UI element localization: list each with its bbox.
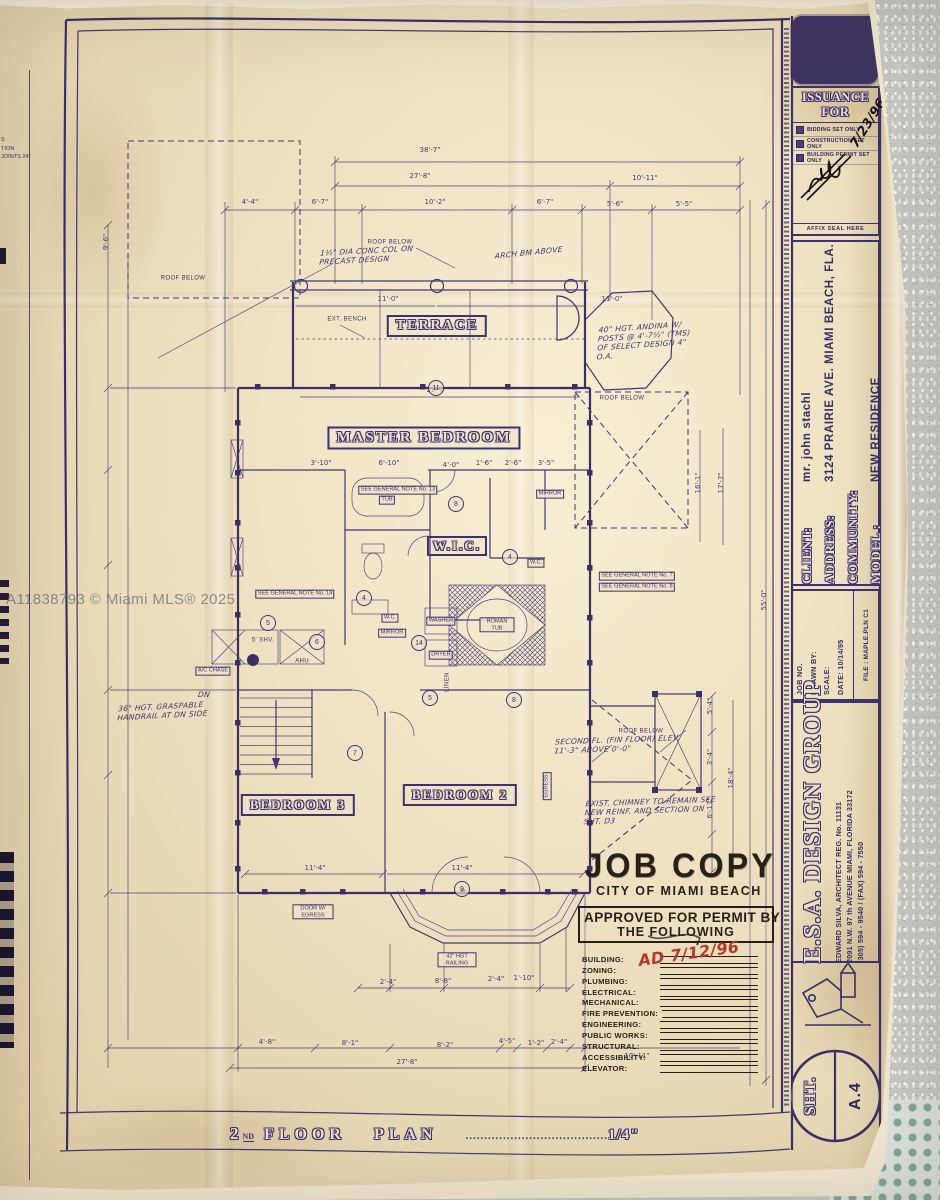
cut-off-text-line: JOINTS 24" xyxy=(1,153,31,162)
firm-phone: (305) 594 - 9540 / (FAX) 594 - 7550 xyxy=(855,701,866,963)
permit-department-list: BUILDING:ZONING:PLUMBING:ELECTRICAL:MECH… xyxy=(582,953,758,1073)
design-firm-block: E.S.A. DESIGN GROUP EDWARD SILVA, ARCHIT… xyxy=(791,701,880,963)
title-word-plan: PLAN xyxy=(374,1126,438,1144)
client-row-label: CLIENT: xyxy=(799,482,815,584)
client-row-value: mr. john stachl xyxy=(801,392,813,482)
department-row: STRUCTURAL: xyxy=(582,1040,758,1051)
client-row: CLIENT:mr. john stachl xyxy=(795,242,818,588)
dimension-label: 4'-8" xyxy=(259,1038,276,1046)
firm-address: 2091 N.W. 97 th AVENUE MIAMI, FLORIDA 33… xyxy=(844,701,855,963)
sheet-title-band: 2 ND FLOOR PLAN ........................… xyxy=(230,1124,710,1144)
department-row: ENGINEERING: xyxy=(582,1018,758,1029)
department-label: MECHANICAL: xyxy=(582,998,656,1007)
dimension-label: 1'-6" xyxy=(476,459,493,467)
dimension-label: 8'-8" xyxy=(435,977,452,985)
client-row: ADDRESS:3124 PRAIRIE AVE. MIAMI BEACH, F… xyxy=(818,242,841,588)
adjacent-sheet-fragment xyxy=(0,248,6,264)
approval-signature xyxy=(793,146,878,204)
dimension-label: 5'-6" xyxy=(607,200,624,208)
signature-line xyxy=(660,978,758,986)
dimension-label: 8'-2" xyxy=(437,1041,454,1049)
firm-logo xyxy=(791,963,880,1041)
department-row: PUBLIC WORKS: xyxy=(582,1029,758,1040)
department-label: PLUMBING: xyxy=(582,977,656,986)
file-cell: FILE : MAPLE.PLN C1 xyxy=(853,591,879,699)
title-ordinal: ND xyxy=(243,1132,255,1142)
micro-disclaimer-text-column xyxy=(784,28,789,1106)
firm-name: E.S.A. DESIGN GROUP xyxy=(793,701,833,963)
adjacent-sheet-border xyxy=(29,70,30,1180)
dimension-label: 8'-1" xyxy=(342,1039,359,1047)
title-number: 2 xyxy=(230,1124,241,1144)
dimension-label: 4'-4" xyxy=(242,198,259,206)
dimension-label: 11'-0" xyxy=(377,295,398,303)
dimension-label: 2'-4" xyxy=(380,978,397,986)
dimension-label: 5'-5" xyxy=(676,200,693,208)
dimension-label: 3'-4" xyxy=(706,749,714,766)
client-row: MODEL :NEW RESIDENCE xyxy=(864,242,887,588)
dimension-label: 4'-5" xyxy=(499,1037,516,1045)
dimension-label: 11'-4" xyxy=(451,864,472,872)
cut-off-note-text: STIONJOINTS 24" xyxy=(1,136,31,162)
affix-seal-here: AFFIX SEAL HERE xyxy=(793,223,878,234)
checkbox-icon xyxy=(796,126,804,134)
department-label: ELECTRICAL: xyxy=(582,988,656,997)
client-row-label: MODEL : xyxy=(868,482,884,584)
dimension-label: 27'-8" xyxy=(396,1058,417,1066)
file-name: FILE : MAPLE.PLN C1 xyxy=(854,591,879,699)
dimension-label: 6'-11" xyxy=(706,797,714,818)
dimension-label: 16'-1" xyxy=(694,472,702,493)
department-row: ACCESSIBILITY: xyxy=(582,1051,758,1062)
approved-for-permit-box: APPROVED FOR PERMIT BY THE FOLLOWING xyxy=(578,906,774,943)
title-scale: 1/4" xyxy=(608,1127,640,1144)
signature-line xyxy=(660,967,758,975)
dimension-label: 9'-6" xyxy=(102,234,110,251)
department-row: ELECTRICAL: xyxy=(582,986,758,997)
dimension-label: 10'-11" xyxy=(632,174,657,182)
department-row: PLUMBING: xyxy=(582,975,758,986)
dimension-label: 3'-5" xyxy=(538,459,555,467)
dimension-label: 1'-2" xyxy=(528,1039,545,1047)
signature-line xyxy=(660,1043,758,1051)
signature-line xyxy=(660,989,758,997)
dimension-label: 22'-0" xyxy=(426,386,447,394)
signature-line xyxy=(660,1021,758,1029)
sheet-label: SHT. xyxy=(802,1077,820,1116)
department-row: MECHANICAL: xyxy=(582,997,758,1008)
dimension-label: 17'-7" xyxy=(717,472,725,493)
department-label: FIRE PREVENTION: xyxy=(582,1009,658,1018)
dimension-label: 6'-10" xyxy=(378,459,399,467)
dimension-label: 2'-4" xyxy=(551,1038,568,1046)
signature-line xyxy=(660,1054,758,1062)
dimension-label: 6'-7" xyxy=(312,198,329,206)
dimension-label: 11'-4" xyxy=(304,864,325,872)
client-row-label: COMMUNITY: xyxy=(845,482,861,584)
title-word-floor: FLOOR xyxy=(264,1126,346,1144)
issuance-for-block: ISSUANCE FOR BIDDING SET ONLYCONSTRUCTIO… xyxy=(791,86,880,236)
signature-line xyxy=(660,1032,758,1040)
department-label: STRUCTURAL: xyxy=(582,1042,656,1051)
cut-off-text-line: S xyxy=(1,136,31,145)
pencil-logo-icon xyxy=(791,963,880,1041)
blueprint-sheet: 38'-7"27'-8"10'-11"4'-4"6'-7"10'-2"6'-7"… xyxy=(0,0,940,1200)
ink-blob xyxy=(792,16,878,84)
dimension-label: 4'-0" xyxy=(443,461,460,469)
client-row-value: NEW RESIDENCE xyxy=(870,377,882,482)
walls xyxy=(128,141,702,943)
dimension-label: 2'-6" xyxy=(505,459,522,467)
dimension-label: 27'-8" xyxy=(409,172,430,180)
job-copy-text: JOB COPY xyxy=(584,846,776,886)
dimension-label: 6'-7" xyxy=(537,198,554,206)
firm-architect: EDWARD SILVA, ARCHITECT REG. No. 11131 xyxy=(833,701,844,963)
department-label: ELEVATOR: xyxy=(582,1064,656,1073)
job-info-line: DATE: 10/14/95 xyxy=(834,587,848,695)
department-label: ACCESSIBILITY: xyxy=(582,1053,656,1062)
signature-line xyxy=(660,1065,758,1073)
job-copy-stamp: JOB COPY CITY OF MIAMI BEACH xyxy=(588,848,772,898)
dimension-label: 5'-4" xyxy=(706,698,714,715)
client-row-value: 3124 PRAIRIE AVE. MIAMI BEACH, FLA. xyxy=(824,244,836,482)
dimension-label: 2'-4" xyxy=(488,975,505,983)
approved-line-1: APPROVED FOR PERMIT BY xyxy=(584,910,768,925)
client-row: COMMUNITY: xyxy=(841,242,864,588)
client-rows: CLIENT:mr. john stachlADDRESS:3124 PRAIR… xyxy=(793,242,880,588)
title-leader-dots: ...................................... xyxy=(466,1130,609,1142)
dimension-label: 38'-7" xyxy=(419,146,440,154)
dimension-label: 1'-10" xyxy=(513,974,534,982)
dimension-label: 11'-0" xyxy=(601,295,622,303)
department-row: ELEVATOR: xyxy=(582,1062,758,1073)
client-info-block: CLIENT:mr. john stachlADDRESS:3124 PRAIR… xyxy=(791,240,880,586)
issuance-option-label: BIDDING SET ONLY xyxy=(807,127,860,133)
approved-line-2: THE FOLLOWING xyxy=(584,925,768,939)
mls-watermark: A11838793 © Miami MLS® 2025 xyxy=(6,591,235,608)
cut-off-text-line: TION xyxy=(1,145,31,154)
blueprint-photo: 38'-7"27'-8"10'-11"4'-4"6'-7"10'-2"6'-7"… xyxy=(0,0,940,1200)
department-row: FIRE PREVENTION: xyxy=(582,1007,758,1018)
department-label: ENGINEERING: xyxy=(582,1020,656,1029)
dimension-label: 10'-2" xyxy=(424,198,445,206)
department-label: PUBLIC WORKS: xyxy=(582,1031,656,1040)
signature-line xyxy=(662,1010,758,1018)
dimension-label: 3'-10" xyxy=(310,459,331,467)
adjacent-sheet-fragment xyxy=(0,852,14,1048)
sheet-number: A.4 xyxy=(847,1082,865,1110)
signature-line xyxy=(660,999,758,1007)
dimension-label: 55'-0" xyxy=(760,589,768,610)
client-row-label: ADDRESS: xyxy=(822,482,838,584)
sheet-number-block: SHT. A.4 xyxy=(791,1041,880,1151)
dimension-label: 18'-4" xyxy=(727,767,735,788)
